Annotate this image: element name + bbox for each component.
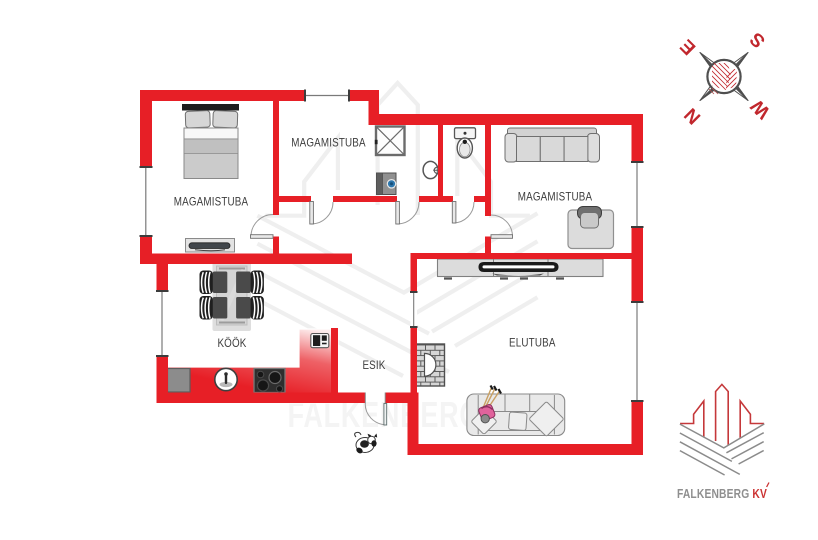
svg-text:ELUTUBA: ELUTUBA bbox=[509, 337, 556, 350]
svg-text:MAGAMISTUBA: MAGAMISTUBA bbox=[291, 137, 366, 150]
svg-text:MAGAMISTUBA: MAGAMISTUBA bbox=[518, 191, 593, 204]
svg-text:MAGAMISTUBA: MAGAMISTUBA bbox=[174, 196, 249, 209]
svg-text:ESIK: ESIK bbox=[362, 359, 386, 372]
svg-text:FALKENBERG KV: FALKENBERG KV bbox=[677, 486, 767, 502]
svg-text:KÖÖK: KÖÖK bbox=[217, 337, 247, 350]
